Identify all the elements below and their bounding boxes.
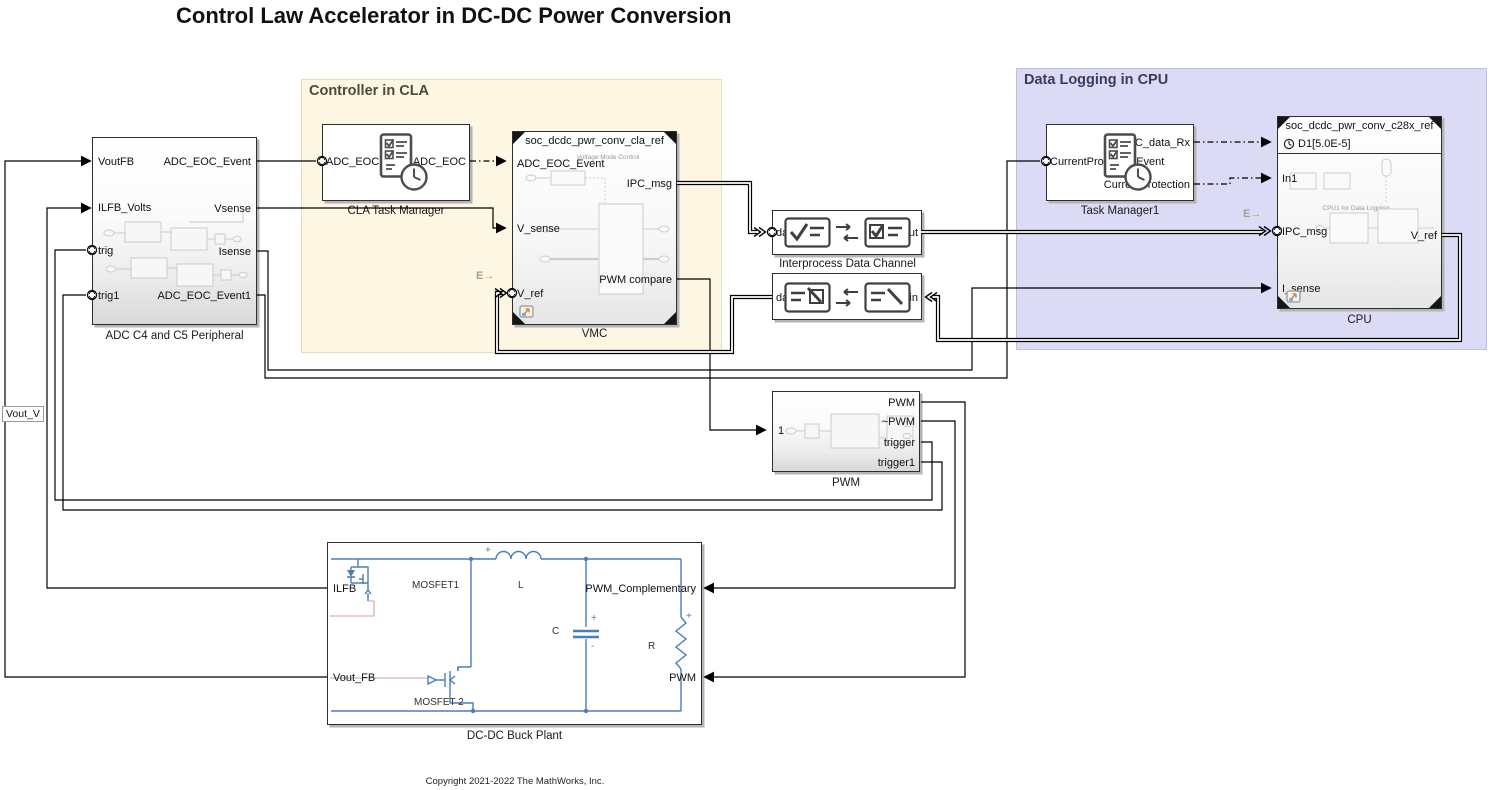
block-caption-cla-task-manager: CLA Task Manager [322, 205, 470, 217]
port-label-v-ref-out: V_ref [1411, 230, 1437, 242]
block-caption-plant: DC-DC Buck Plant [327, 730, 702, 742]
port-label-cpu-ipc-msg: IPC_msg [1282, 226, 1327, 238]
port-label-plant-pwm: PWM [669, 672, 696, 684]
component-label-inductor: L [518, 580, 524, 591]
port-label-pwm-complementary: PWM_Complementary [585, 583, 696, 595]
port-label-v-sense: V_sense [517, 223, 560, 235]
polarity-plus: + [591, 613, 597, 624]
model-corner-icon [664, 312, 676, 324]
component-label-capacitor: C [552, 626, 559, 637]
block-vmc[interactable]: soc_dcdc_pwr_conv_cla_ref Voltage Mode C… [512, 131, 677, 325]
vmc-model-name: soc_dcdc_pwr_conv_cla_ref [513, 135, 676, 147]
rate-transition-marker: E→ [476, 270, 494, 282]
port-label-trig: trig [98, 245, 113, 257]
port-label-adc-eoc-event: ADC_EOC_Event [164, 156, 251, 168]
block-interprocess-data-channel1[interactable]: dataout datain [772, 273, 922, 320]
port-label-pwm-out: PWM [888, 397, 915, 409]
block-caption-task-manager1: Task Manager1 [1046, 205, 1194, 217]
block-caption-ipc1: Interprocess Data Channel [735, 258, 960, 270]
port-label-v-ref-in: V_ref [517, 288, 543, 300]
block-adc-peripheral[interactable]: VoutFB ILFB_Volts trig trig1 ADC_EOC_Eve… [92, 137, 257, 325]
model-corner-icon [1429, 117, 1441, 129]
task-manager-icon [375, 133, 429, 193]
cpu-header-separator [1278, 153, 1441, 154]
buck-circuit-sketch [328, 543, 703, 726]
diagram-title: Control Law Accelerator in DC-DC Power C… [176, 3, 731, 29]
port-label-npwm-out: ~PWM [882, 416, 915, 428]
model-corner-icon [664, 132, 676, 144]
block-dcdc-buck-plant[interactable]: ILFB Vout_FB PWM_Complementary PWM MOSFE… [327, 542, 702, 725]
port-label-vout-fb: Vout_FB [333, 672, 375, 684]
model-corner-icon [1278, 117, 1290, 129]
model-badge-icon [519, 304, 535, 319]
cpu-sample-rate: D1[5.0E-5] [1298, 138, 1351, 150]
clock-icon [1283, 138, 1295, 150]
cpu-inner-title: CPU1 for Data Logging [1322, 205, 1389, 212]
component-label-mosfet1: MOSFET1 [412, 580, 459, 591]
block-caption-vmc: VMC [512, 328, 677, 340]
model-corner-icon [513, 132, 525, 144]
ipc-channel-icon [784, 216, 912, 250]
port-label-trig1: trig1 [98, 290, 119, 302]
component-label-mosfet2: MOSFET 2 [414, 697, 464, 708]
port-label-ipc-msg-out: IPC_msg [627, 178, 672, 190]
port-label-vsense: Vsense [214, 203, 251, 215]
region-cpu-label: Data Logging in CPU [1017, 69, 1486, 91]
polarity-plus: + [485, 545, 491, 556]
rate-arrow-icon: → [483, 270, 494, 282]
block-caption-pwm: PWM [772, 477, 920, 489]
port-label-isense: Isense [219, 246, 251, 258]
block-interprocess-data-channel[interactable]: datain dataout [772, 210, 922, 255]
port-label-in1: In1 [1282, 173, 1297, 185]
polarity-minus: - [591, 641, 594, 652]
copyright-note: Copyright 2021-2022 The MathWorks, Inc. [415, 776, 615, 787]
simulink-diagram-canvas: Control Law Accelerator in DC-DC Power C… [0, 0, 1490, 790]
rate-transition-marker: E→ [1243, 208, 1261, 220]
task-manager-icon [1099, 133, 1153, 193]
port-label-pwm-in1: 1 [778, 425, 784, 437]
port-label-pwm-compare: PWM compare [599, 274, 672, 286]
port-label-trigger1: trigger1 [878, 457, 915, 469]
block-caption-cpu: CPU [1277, 314, 1442, 326]
port-label-adc-eoc-event1: ADC_EOC_Event1 [157, 290, 251, 302]
block-cla-task-manager[interactable]: ADC_EOCEvent ADC_EOC [322, 124, 470, 201]
polarity-plus: + [686, 611, 692, 622]
block-pwm[interactable]: 1 PWM ~PWM trigger trigger1 [772, 391, 920, 472]
port-label-voutfb: VoutFB [98, 156, 134, 168]
model-corner-icon [1429, 296, 1441, 308]
rate-arrow-icon: → [1250, 208, 1261, 220]
port-label-ilfb: ILFB [333, 583, 356, 595]
component-label-resistor: R [648, 641, 655, 652]
port-label-trigger: trigger [884, 437, 915, 449]
block-task-manager1[interactable]: CurrentProtectionEvent IPC_data_Rx Curre… [1046, 124, 1194, 201]
cpu-model-name: soc_dcdc_pwr_conv_c28x_ref [1278, 120, 1441, 132]
model-badge-icon [1286, 289, 1302, 304]
port-label-vmc-adc-eoc-event: ADC_EOC_Event [517, 158, 604, 170]
port-label-ilfb-volts: ILFB_Volts [98, 202, 151, 214]
ipc-channel-icon [784, 281, 912, 315]
signal-label-vout-v[interactable]: Vout_V [2, 406, 44, 422]
block-caption-adc: ADC C4 and C5 Peripheral [92, 330, 257, 342]
block-cpu[interactable]: soc_dcdc_pwr_conv_c28x_ref D1[5.0E-5] CP… [1277, 116, 1442, 309]
region-cla-label: Controller in CLA [302, 80, 721, 102]
